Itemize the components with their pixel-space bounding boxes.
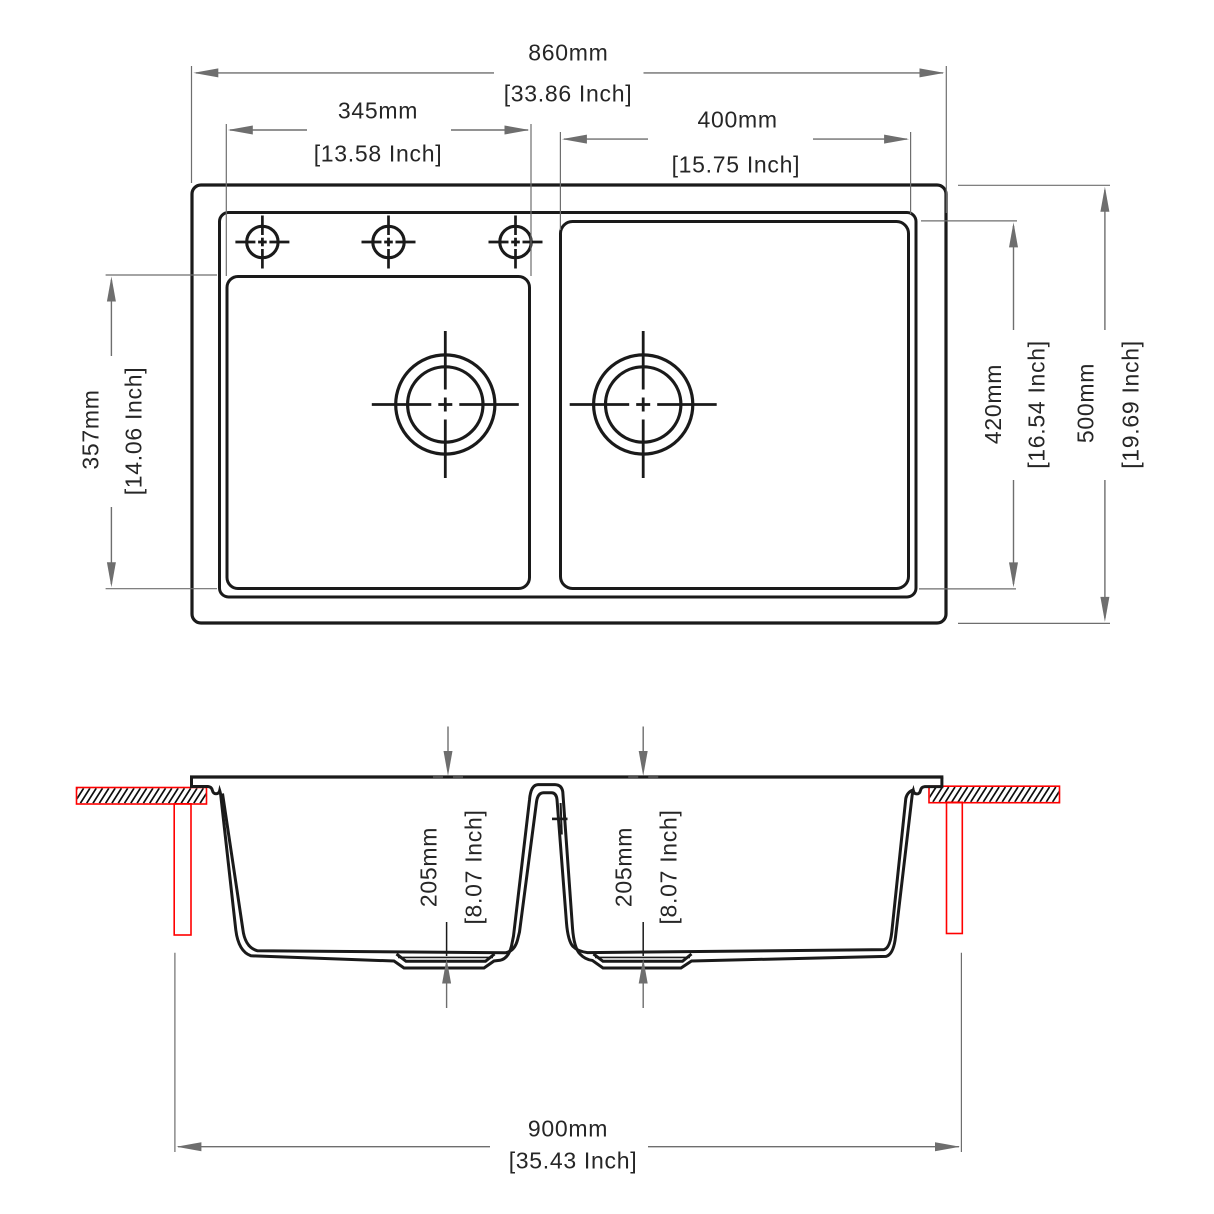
svg-text:[8.07 Inch]: [8.07 Inch]	[656, 809, 682, 924]
svg-text:357mm: 357mm	[78, 389, 104, 469]
svg-text:[13.58 Inch]: [13.58 Inch]	[314, 141, 443, 167]
svg-text:860mm: 860mm	[528, 40, 608, 66]
svg-text:[33.86 Inch]: [33.86 Inch]	[504, 81, 633, 107]
svg-text:900mm: 900mm	[528, 1116, 608, 1142]
svg-text:[16.54 Inch]: [16.54 Inch]	[1024, 340, 1050, 469]
svg-text:500mm: 500mm	[1073, 363, 1099, 443]
svg-text:[14.06 Inch]: [14.06 Inch]	[121, 367, 147, 496]
svg-text:[35.43 Inch]: [35.43 Inch]	[509, 1148, 638, 1174]
svg-text:205mm: 205mm	[416, 827, 442, 907]
svg-text:345mm: 345mm	[338, 98, 418, 124]
svg-text:420mm: 420mm	[980, 364, 1006, 444]
svg-text:[19.69 Inch]: [19.69 Inch]	[1118, 340, 1144, 469]
svg-text:400mm: 400mm	[697, 107, 777, 133]
svg-text:[15.75 Inch]: [15.75 Inch]	[672, 152, 801, 178]
svg-text:205mm: 205mm	[611, 827, 637, 907]
svg-text:[8.07 Inch]: [8.07 Inch]	[461, 809, 487, 924]
